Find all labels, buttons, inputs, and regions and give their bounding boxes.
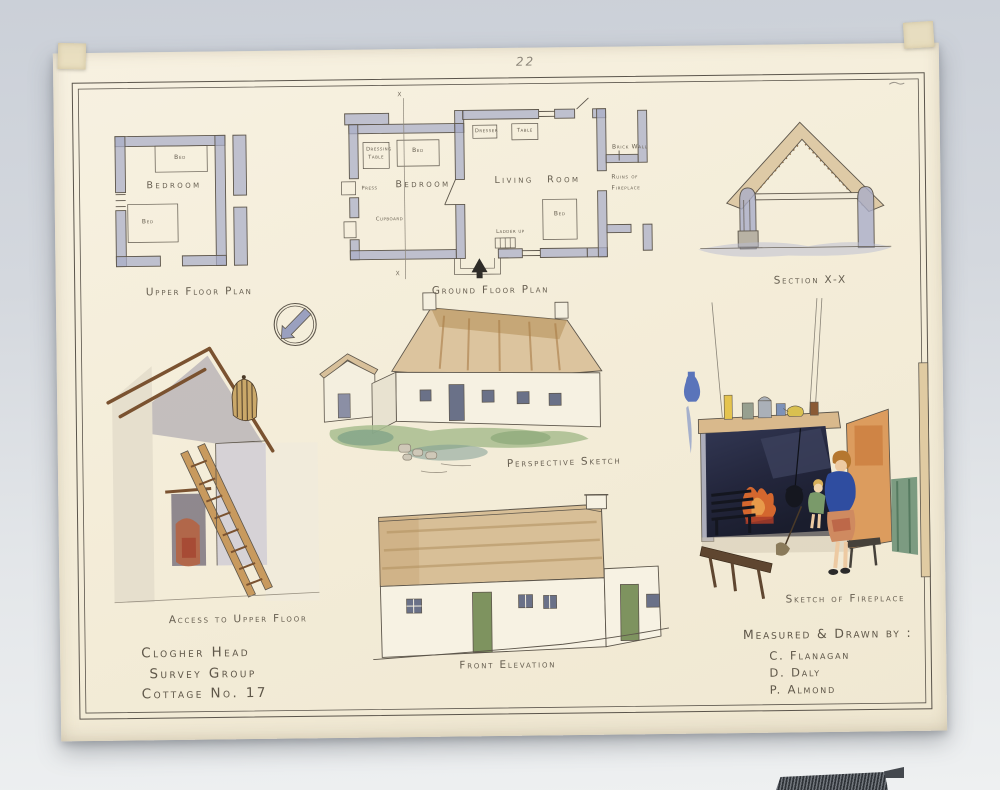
north-arrow [274, 303, 317, 346]
upper-bed-top-label: Bed [174, 155, 186, 161]
upper-bedroom-label: Bedroom [146, 181, 201, 191]
title-line-3: Cottage No. 17 [142, 687, 268, 702]
title-line-1: Clogher Head [141, 646, 250, 661]
section-caption: Section X-X [774, 275, 847, 286]
gf-brick-wall-label: Brick Wall [612, 144, 648, 150]
fireplace-caption: Sketch of Fireplace [786, 593, 906, 605]
gf-press-label: Press [362, 186, 378, 191]
section-drawing [697, 121, 892, 257]
photograph-of-drawing: 22 Upper Floor Plan Ground Floor Plan Se… [0, 0, 1000, 790]
section-marker-top: x [397, 90, 401, 98]
green-wall [891, 477, 918, 555]
birdcage [232, 375, 258, 421]
access-caption: Access to Upper Floor [169, 613, 308, 625]
title-line-2: Survey Group [149, 667, 256, 682]
gf-bed-living-label: Bed [554, 211, 566, 217]
front-elevation-drawing [371, 494, 669, 660]
gf-table-label: Table [517, 129, 533, 134]
bench-right [847, 537, 881, 567]
section-marker-bottom: x [396, 269, 400, 277]
pencil-squiggle [889, 82, 904, 84]
gf-dressing-table-label-1: Dressing [366, 147, 392, 153]
ground-floor-plan-drawing [340, 95, 652, 280]
gf-ladder-label: Ladder up [496, 230, 525, 236]
front-elevation-caption: Front Elevation [459, 659, 556, 671]
gf-bedroom-label: Bedroom [395, 180, 450, 190]
gf-cupboard-label: Cupboard [376, 217, 403, 223]
gf-dressing-table-label-2: Table [368, 155, 384, 160]
gf-bed-bedroom-label: Bed [412, 148, 424, 154]
perspective-sketch-drawing [319, 291, 603, 474]
page-number: 22 [516, 56, 535, 68]
credits-heading: Measured & Drawn by : [743, 627, 913, 642]
credit-name-3: P. Almond [770, 684, 836, 696]
bench-left [700, 546, 773, 600]
access-sketch-drawing [107, 347, 319, 603]
upper-floor-plan-caption: Upper Floor Plan [146, 286, 253, 298]
gf-ruins-label-1: Ruins of [611, 174, 638, 180]
ground-floor-plan-caption: Ground Floor Plan [432, 284, 550, 296]
gf-dresser-label: Dresser [475, 129, 498, 134]
credit-name-2: D. Daly [769, 667, 821, 679]
upper-bed-bottom-label: Bed [142, 219, 154, 225]
gf-living-room-label: Living Room [494, 175, 580, 186]
paper-wrapper: 22 Upper Floor Plan Ground Floor Plan Se… [0, 0, 1000, 790]
credit-name-1: C. Flanagan [769, 650, 850, 662]
blue-jug [684, 375, 700, 402]
fireplace-sketch-drawing [683, 297, 931, 600]
gf-ruins-label-2: Fireplace [612, 185, 641, 191]
